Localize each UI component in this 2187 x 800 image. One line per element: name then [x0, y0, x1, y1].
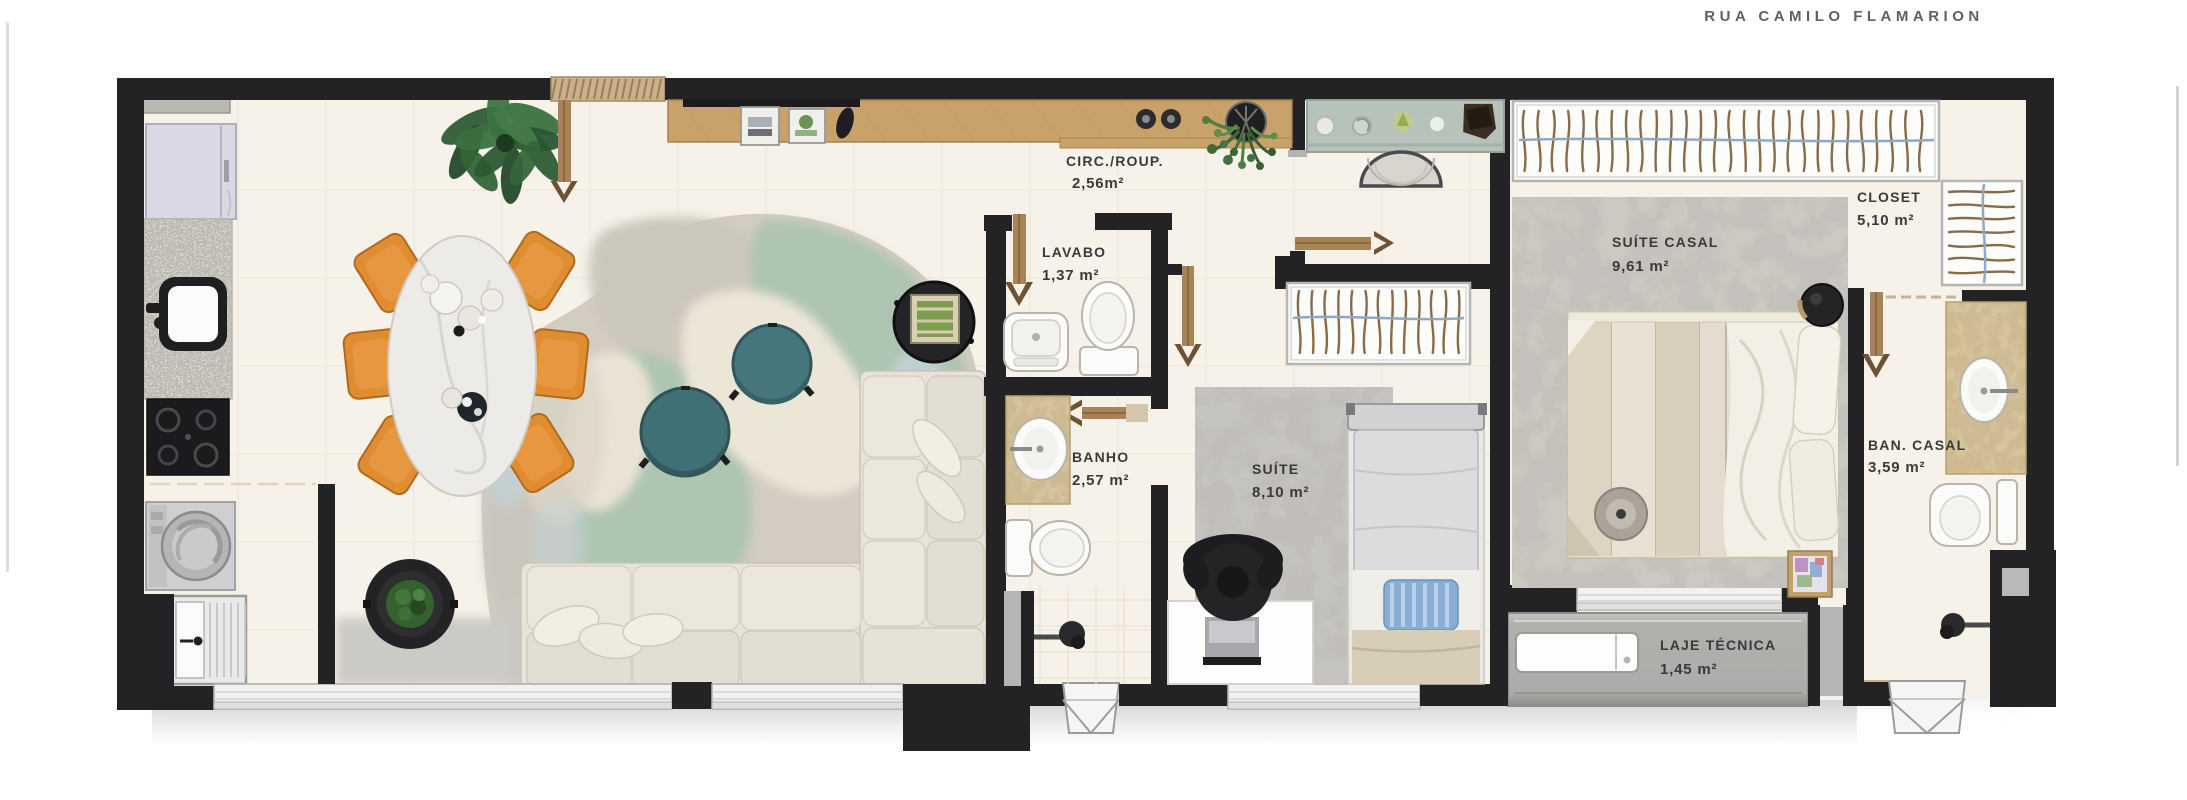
svg-text:2,56m²: 2,56m²	[1072, 175, 1124, 192]
svg-text:2,57 m²: 2,57 m²	[1072, 472, 1129, 489]
svg-text:8,10 m²: 8,10 m²	[1252, 484, 1309, 501]
svg-text:CIRC./ROUP.: CIRC./ROUP.	[1066, 153, 1164, 169]
svg-text:5,10 m²: 5,10 m²	[1857, 212, 1914, 229]
svg-text:SUÍTE: SUÍTE	[1252, 461, 1299, 477]
svg-text:LAVABO: LAVABO	[1042, 244, 1106, 260]
svg-text:RUA CAMILO FLAMARION: RUA CAMILO FLAMARION	[1704, 8, 1983, 25]
svg-text:1,37 m²: 1,37 m²	[1042, 267, 1099, 284]
svg-text:LAJE TÉCNICA: LAJE TÉCNICA	[1660, 637, 1776, 653]
svg-text:1,45 m²: 1,45 m²	[1660, 661, 1717, 678]
svg-text:9,61 m²: 9,61 m²	[1612, 258, 1669, 275]
svg-text:BAN. CASAL: BAN. CASAL	[1868, 437, 1966, 453]
svg-text:3,59 m²: 3,59 m²	[1868, 459, 1925, 476]
svg-text:CLOSET: CLOSET	[1857, 189, 1921, 205]
svg-text:SUÍTE CASAL: SUÍTE CASAL	[1612, 234, 1719, 250]
svg-text:BANHO: BANHO	[1072, 449, 1129, 465]
